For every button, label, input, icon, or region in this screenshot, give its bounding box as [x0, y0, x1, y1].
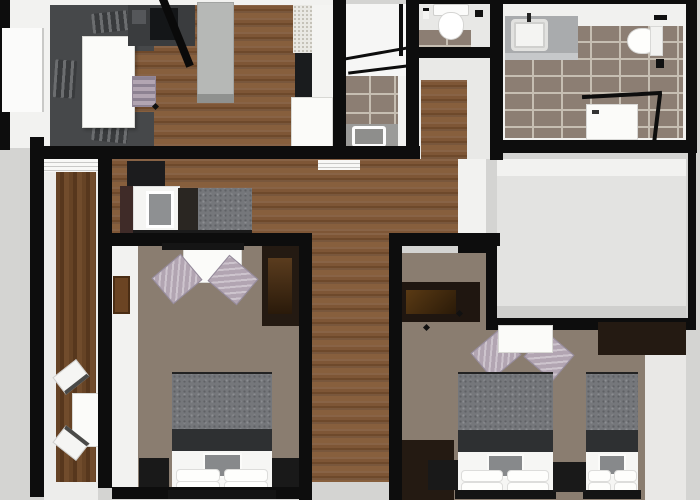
bed-pillow [507, 470, 549, 482]
single-bed-blanket-band [178, 188, 198, 233]
bedroom-right-wardrobe [598, 322, 686, 355]
wall-kitchen-bath [333, 0, 346, 159]
empty-room-floor-shade [497, 306, 686, 318]
wall-below-living [30, 146, 420, 159]
toilet-paper-holder [423, 8, 429, 19]
counter-speckled-top [293, 5, 312, 53]
bed-footboard [168, 490, 276, 499]
bench [132, 76, 156, 107]
second-bed-headboard [586, 372, 638, 430]
bed-pillow [614, 470, 637, 482]
outer-wall-top-right [407, 0, 697, 4]
kitchen-island-shadow [197, 94, 234, 103]
outer-wall-right-top [686, 0, 697, 153]
bed-headboard [458, 372, 553, 430]
wall-fixture [656, 59, 664, 68]
wall-bathroom-bottom [490, 140, 697, 153]
bedroom-left-window [113, 276, 130, 314]
toilet-tank [650, 26, 663, 56]
wall-tv [162, 243, 244, 250]
door-nook [458, 159, 486, 243]
entry-wood [421, 80, 467, 159]
corridor-threshold [312, 482, 389, 500]
bath-mat [352, 126, 386, 147]
empty-room-wall-face [497, 159, 686, 176]
nightstand [553, 462, 586, 492]
shower-room-tile [346, 76, 406, 124]
counter-front [312, 5, 333, 97]
kitchen-island [197, 2, 234, 102]
sofa-cushion [91, 10, 129, 34]
second-bed-footboard [583, 490, 641, 499]
wall-bath-wc [406, 0, 419, 159]
radiator-shelf [44, 159, 98, 172]
toilet-paper-holder [654, 15, 667, 20]
hall-vent-shelf [318, 160, 360, 170]
wall-empty-room-left [486, 243, 497, 330]
vanity-sink [511, 19, 548, 51]
nightstand [428, 460, 458, 490]
shower-room-wall-face [398, 76, 406, 146]
corridor-vertical-wood [312, 233, 389, 482]
toilet-bowl [438, 12, 464, 40]
second-bed-blanket-band [586, 430, 638, 452]
wall-wc-bottom [406, 47, 503, 58]
wall-corridor-bedroom [98, 152, 112, 488]
single-bed-duvet [198, 188, 252, 233]
wardrobe-interior [268, 258, 292, 314]
den-cabinet [127, 161, 165, 188]
oven-appliance [295, 53, 312, 97]
bedroom-right-desk [498, 325, 553, 353]
shower-drain [592, 110, 599, 114]
wall-entry-bathroom [490, 0, 503, 160]
sofa-cushion [53, 59, 78, 98]
window-living-room [2, 28, 44, 112]
bed-pillow [461, 470, 503, 482]
bed-blanket-band [458, 430, 553, 452]
single-bed-pillow [146, 191, 174, 228]
outer-wall-left-lower [30, 137, 44, 497]
faucet [527, 13, 531, 22]
wall-corridor-east [389, 233, 402, 500]
media-dresser-front [406, 290, 456, 314]
bed-footboard [455, 490, 556, 499]
bed-headboard [172, 372, 272, 429]
fridge [291, 97, 333, 148]
outer-wall-right-mid [688, 153, 696, 330]
kitchen-sink [132, 10, 146, 24]
wall-corridor-west [299, 233, 312, 500]
wall-fixture [475, 10, 483, 17]
bedroom-right-wall-face [645, 330, 686, 500]
coffee-table [82, 36, 135, 128]
bed-blanket-band [172, 429, 272, 451]
bed-pillow [588, 470, 611, 482]
floor-plan [0, 0, 700, 500]
empty-room-floor [497, 159, 686, 318]
